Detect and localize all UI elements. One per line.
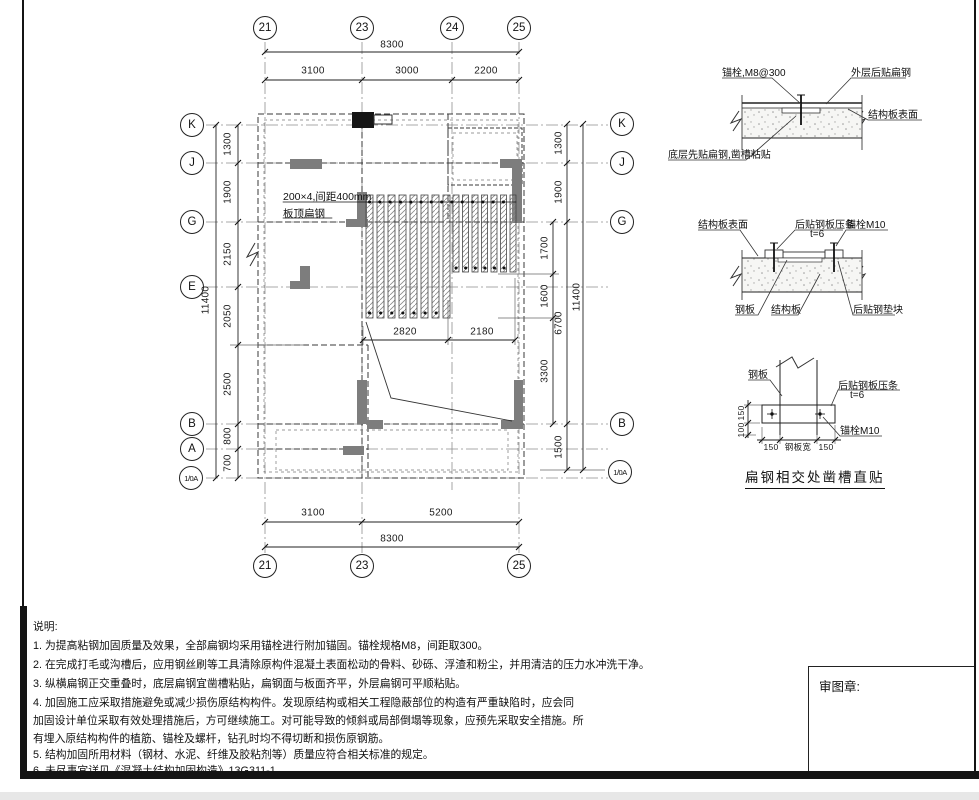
detail3-dim-100v: 100 — [736, 422, 746, 437]
grid-bubble-right-K: K — [610, 112, 634, 136]
grid-bubble-label: B — [188, 418, 196, 430]
detail3-anchor-label: 锚栓M10 — [840, 422, 879, 437]
grid-bubble-right-B: B — [610, 412, 634, 436]
dim-right-mid-1: 1300 — [554, 131, 565, 154]
detail3-title: 扁钢相交处凿槽直贴 — [745, 466, 885, 489]
dim-bottom-2: 5200 — [429, 508, 452, 519]
grid-bubble-label: G — [618, 216, 627, 228]
grid-bubble-label: 25 — [513, 22, 526, 34]
grid-bubble-right-1-0A: 1/0A — [608, 460, 632, 484]
detail2-plate-label: 钢板 — [735, 301, 755, 316]
detail2-pad-label: 后贴钢垫块 — [853, 301, 903, 316]
dim-left-6: 800 — [223, 427, 234, 445]
grid-bubble-label: B — [618, 418, 626, 430]
dim-right-mid-3: 6700 — [554, 311, 565, 334]
review-stamp-label: 审图章: — [819, 676, 860, 695]
column-mark — [352, 112, 374, 128]
grid-bubble-left-1-0A: 1/0A — [179, 466, 203, 490]
column-tail — [374, 115, 392, 124]
note-line-5: 加固设计单位采取有效处理措施后，方可继续施工。对可能导致的倾斜或局部倒塌等现象，… — [33, 712, 584, 728]
dim-top-total: 8300 — [380, 40, 403, 51]
grid-bubble-label: 21 — [259, 560, 272, 572]
dim-right-inner-2: 1600 — [540, 284, 551, 307]
grid-bubble-label: J — [189, 157, 195, 169]
grid-bubble-label: A — [188, 443, 196, 455]
dim-strip-1: 2820 — [393, 327, 416, 338]
dim-left-4: 2050 — [223, 304, 234, 327]
dim-top-3: 2200 — [474, 66, 497, 77]
note-line-4: 4. 加固施工应采取措施避免或减少损伤原结构构件。发现原结构或相关工程隐蔽部位的… — [33, 694, 574, 710]
grid-bubble-right-G: G — [610, 210, 634, 234]
dim-right-inner-3: 3300 — [540, 359, 551, 382]
sheet-border-right — [974, 0, 976, 779]
sheet-border-bottom — [20, 771, 979, 779]
detail2-slab-surface-label: 结构板表面 — [698, 216, 748, 231]
grid-bubble-label: E — [188, 281, 196, 293]
detail3-plate-label: 钢板 — [748, 366, 768, 381]
detail1-slab-surface-label: 结构板表面 — [868, 106, 918, 121]
grid-bubble-top-25: 25 — [507, 16, 531, 40]
notes-border-bar — [20, 606, 27, 772]
grid-bubble-bottom-21: 21 — [253, 554, 277, 578]
grid-bubble-label: 25 — [513, 560, 526, 572]
grid-bubble-label: 23 — [356, 560, 369, 572]
detail3-dim-150v: 150 — [736, 405, 746, 420]
grid-bubble-bottom-23: 23 — [350, 554, 374, 578]
dim-right-mid-2: 1900 — [554, 180, 565, 203]
dim-right-mid-4: 1500 — [554, 435, 565, 458]
detail3-dim-150-right: 150 — [818, 442, 833, 452]
dim-left-3: 2150 — [223, 242, 234, 265]
grid-bubble-left-G: G — [180, 210, 204, 234]
dim-strip-2: 2180 — [470, 327, 493, 338]
grid-bubble-label: K — [188, 119, 196, 131]
grid-bubble-label: 1/0A — [184, 474, 197, 483]
flat-steel-strips — [366, 195, 516, 318]
detail1-bottom-layer-label: 底层先贴扁钢,凿槽粘贴 — [668, 146, 771, 161]
strip-annotation-line2: 板顶扁钢 — [283, 206, 325, 221]
dim-left-1: 1300 — [223, 132, 234, 155]
dim-bottom-total: 8300 — [380, 534, 403, 545]
notes-title: 说明: — [33, 618, 58, 634]
dim-left-total: 11400 — [201, 286, 212, 315]
grid-bubble-bottom-25: 25 — [507, 554, 531, 578]
note-line-6: 有埋入原结构构件的植筋、锚栓及螺杆，钻孔时均不得切断和损伤原钢筋。 — [33, 730, 389, 746]
grid-bubble-label: J — [619, 157, 625, 169]
drawing-sheet: 21 23 24 25 21 23 25 K J G E B A 1/0A K … — [0, 0, 979, 800]
detail2-slab-label: 结构板 — [771, 301, 801, 316]
dim-left-7: 700 — [223, 454, 234, 472]
note-line-2: 2. 在完成打毛或沟槽后，应用钢丝刷等工具清除原构件混凝土表面松动的骨料、砂砾、… — [33, 656, 650, 672]
note-line-1: 1. 为提高粘钢加固质量及效果，全部扁钢均采用锚栓进行附加锚固。锚栓规格M8，间… — [33, 637, 488, 653]
dim-top-2: 3000 — [395, 66, 418, 77]
detail3-thickness-label: t=6 — [850, 390, 864, 401]
grid-bubble-left-B: B — [180, 412, 204, 436]
detail3-dim-150-left: 150 — [763, 442, 778, 452]
detail2-thickness-label: t=6 — [810, 229, 824, 240]
review-stamp-box: 审图章: — [808, 666, 975, 772]
detail3-dim-plate-width: 钢板宽 — [785, 441, 811, 453]
grid-bubble-right-J: J — [610, 151, 634, 175]
bottom-gray-strip — [0, 792, 979, 800]
grid-bubble-label: 1/0A — [613, 468, 626, 477]
dim-top-1: 3100 — [301, 66, 324, 77]
grid-bubble-top-21: 21 — [253, 16, 277, 40]
grid-bubble-left-K: K — [180, 113, 204, 137]
detail1-anchor-label: 锚栓,M8@300 — [722, 64, 786, 79]
grid-bubble-label: 23 — [356, 22, 369, 34]
detail2-anchor-label: 锚栓M10 — [846, 216, 885, 231]
dim-left-2: 1900 — [223, 180, 234, 203]
grid-bubble-label: 21 — [259, 22, 272, 34]
note-line-3: 3. 纵横扁钢正交重叠时，底层扁钢宜凿槽粘贴，扁钢面与板面齐平，外层扁钢可平顺粘… — [33, 675, 466, 691]
grid-bubble-label: 24 — [446, 22, 459, 34]
strip-annotation-line1: 200×4,间距400mm — [283, 189, 371, 204]
grid-bubble-top-23: 23 — [350, 16, 374, 40]
grid-bubble-top-24: 24 — [440, 16, 464, 40]
grid-bubble-left-J: J — [180, 151, 204, 175]
dim-left-5: 2500 — [223, 372, 234, 395]
grid-bubble-left-A: A — [180, 437, 204, 461]
dim-right-total: 11400 — [572, 283, 583, 312]
detail1-outer-steel-label: 外层后贴扁钢 — [851, 64, 911, 79]
dim-bottom-1: 3100 — [301, 508, 324, 519]
note-line-7: 5. 结构加固所用材料（钢材、水泥、纤维及胶粘剂等）质量应符合相关标准的规定。 — [33, 746, 434, 762]
dim-right-inner-1: 1700 — [540, 236, 551, 259]
detail3-batten-label: 后贴钢板压条 — [838, 377, 898, 392]
grid-bubble-label: G — [188, 216, 197, 228]
grid-bubble-label: K — [618, 118, 626, 130]
